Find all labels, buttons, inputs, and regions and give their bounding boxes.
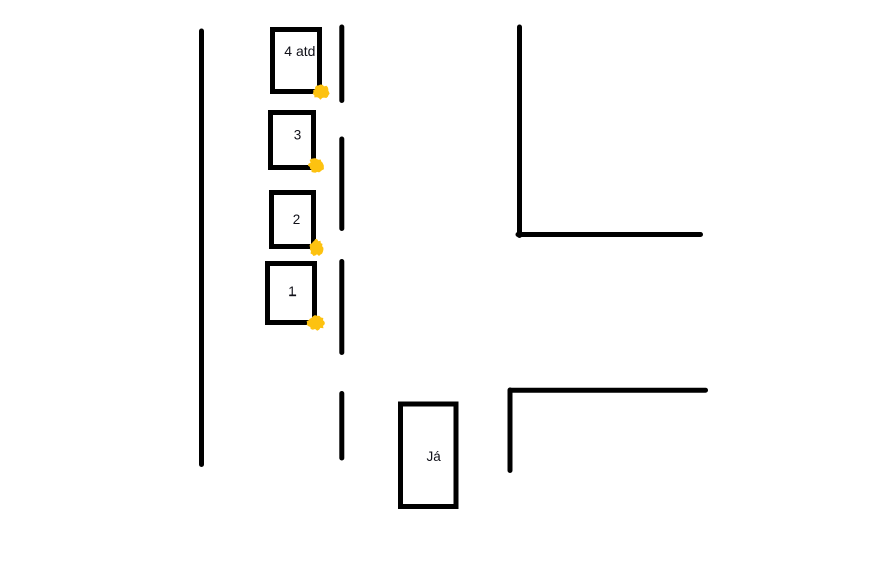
svg-text:4 atd: 4 atd xyxy=(284,43,315,59)
svg-text:3: 3 xyxy=(294,128,302,143)
svg-text:Já: Já xyxy=(427,449,442,464)
svg-text:2: 2 xyxy=(293,212,301,227)
svg-text:1: 1 xyxy=(288,284,296,299)
